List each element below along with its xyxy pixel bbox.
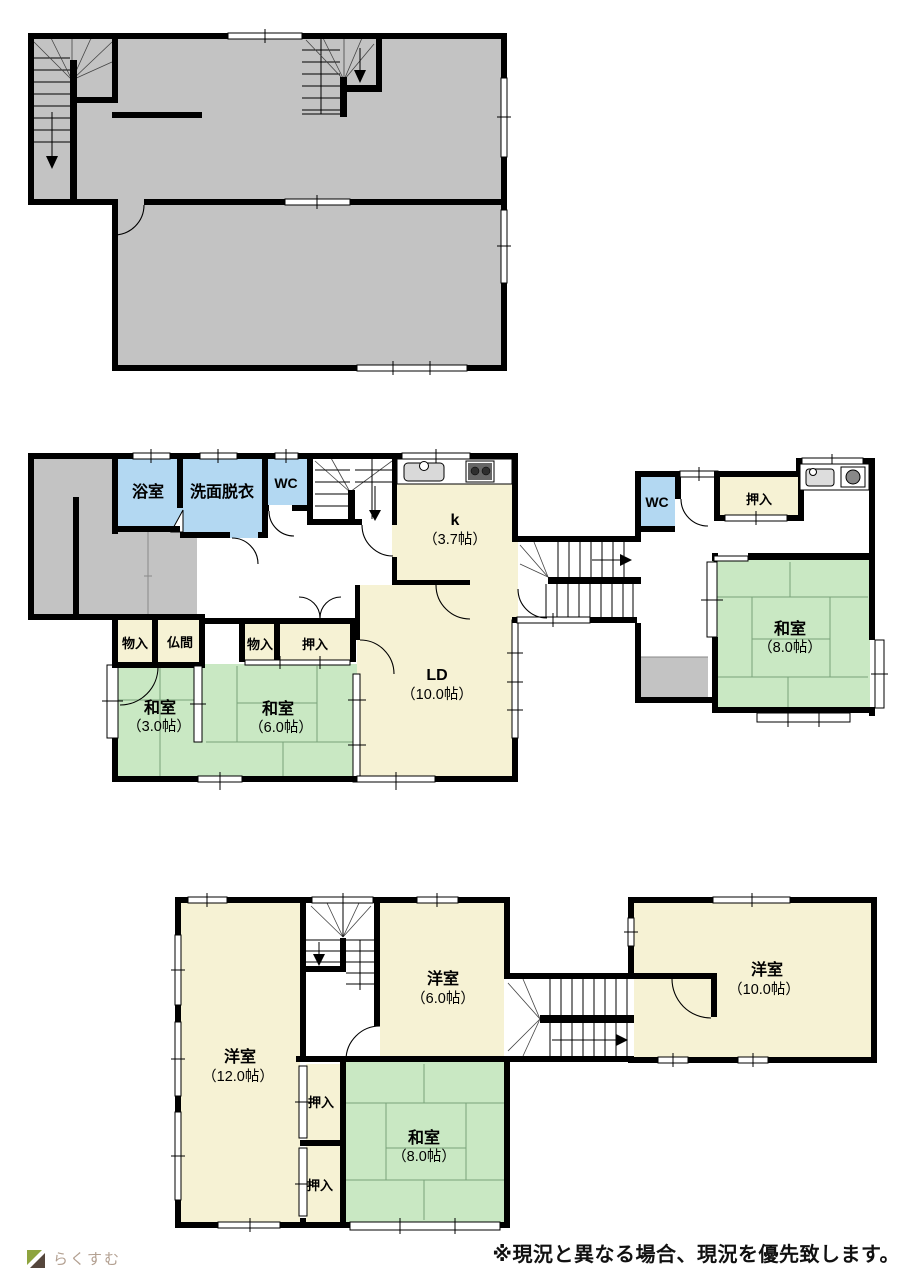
window <box>218 1222 280 1228</box>
label-yoshitsu6: 洋室 <box>427 969 459 988</box>
floor-2f: 洋室 （12.0帖） 洋室 （6.0帖） 押入 押入 和室 （8.0帖） 洋室 … <box>171 893 877 1234</box>
stair-up-arrow <box>620 554 632 566</box>
label-washitsu8: 和室 <box>774 619 806 638</box>
gray-corridor <box>641 657 708 700</box>
label-washitsu6: 和室 <box>262 699 294 718</box>
label-washitsu8-2f-size: （8.0帖） <box>392 1148 456 1165</box>
label-ld-size: （10.0帖） <box>401 686 473 703</box>
label-storage-b: 物入 <box>247 637 273 652</box>
label-washitsu6-size: （6.0帖） <box>249 719 313 736</box>
sliding-door <box>245 660 350 665</box>
window <box>357 365 467 371</box>
door-arc <box>518 589 547 618</box>
label-oshiire-a: 押入 <box>308 1095 334 1110</box>
door-arc <box>681 499 708 526</box>
label-yoshitsu12: 洋室 <box>224 1047 256 1066</box>
label-oshiire-a: 押入 <box>302 637 328 652</box>
label-butsuma: 仏間 <box>167 635 193 650</box>
label-storage-a: 物入 <box>122 636 148 651</box>
label-wc-right: WC <box>645 494 668 510</box>
door-arc <box>269 511 294 536</box>
label-bath: 浴室 <box>132 482 164 501</box>
label-oshiire-b: 押入 <box>307 1178 333 1193</box>
double-door-arc <box>299 597 320 618</box>
floorplan-page: 浴室 洗面脱衣 WC k （3.7帖） LD （10.0帖） 物入 仏間 物入 … <box>0 0 905 1280</box>
label-yoshitsu12-size: （12.0帖） <box>202 1068 274 1085</box>
disclaimer-text: ※現況と異なる場合、現況を優先致します。 <box>493 1238 900 1267</box>
label-washitsu8-2f: 和室 <box>408 1128 440 1147</box>
double-door-arc <box>320 597 341 618</box>
logo-text: らくすむ <box>53 1248 121 1269</box>
label-washitsu8-size: （8.0帖） <box>758 639 822 656</box>
window <box>512 620 518 738</box>
house-logo-icon <box>26 1249 46 1269</box>
floor-1f: 浴室 洗面脱衣 WC k （3.7帖） LD （10.0帖） 物入 仏間 物入 … <box>28 449 888 790</box>
sliding-door <box>714 556 748 561</box>
door-arc <box>362 525 393 556</box>
floor-basement <box>28 29 511 375</box>
floorplan-drawing: 浴室 洗面脱衣 WC k （3.7帖） LD （10.0帖） 物入 仏間 物入 … <box>0 0 905 1280</box>
stair-down-arrow <box>369 510 381 521</box>
sliding-door <box>299 1148 307 1216</box>
stair-down-arrow <box>313 954 325 966</box>
room-yoshitsu10 <box>634 903 871 1057</box>
rakusumu-logo: らくすむ <box>26 1248 121 1269</box>
window <box>350 1222 500 1230</box>
door-arc <box>232 538 258 564</box>
label-kitchen: k <box>451 512 460 529</box>
sliding-door <box>353 674 360 782</box>
label-yoshitsu10-size: （10.0帖） <box>728 981 800 998</box>
stair-up-arrow <box>616 1034 628 1046</box>
window <box>757 713 850 722</box>
label-wc-left: WC <box>274 475 297 491</box>
door-arc <box>346 1026 380 1060</box>
label-yoshitsu6-size: （6.0帖） <box>411 990 475 1007</box>
label-yoshitsu10: 洋室 <box>751 960 783 979</box>
label-washitsu3: 和室 <box>144 698 176 717</box>
label-oshiire-b: 押入 <box>746 492 772 507</box>
label-washitsu3-size: （3.0帖） <box>127 718 191 735</box>
label-kitchen-size: （3.7帖） <box>423 531 487 548</box>
label-washroom: 洗面脱衣 <box>190 482 254 501</box>
label-ld: LD <box>426 667 447 684</box>
